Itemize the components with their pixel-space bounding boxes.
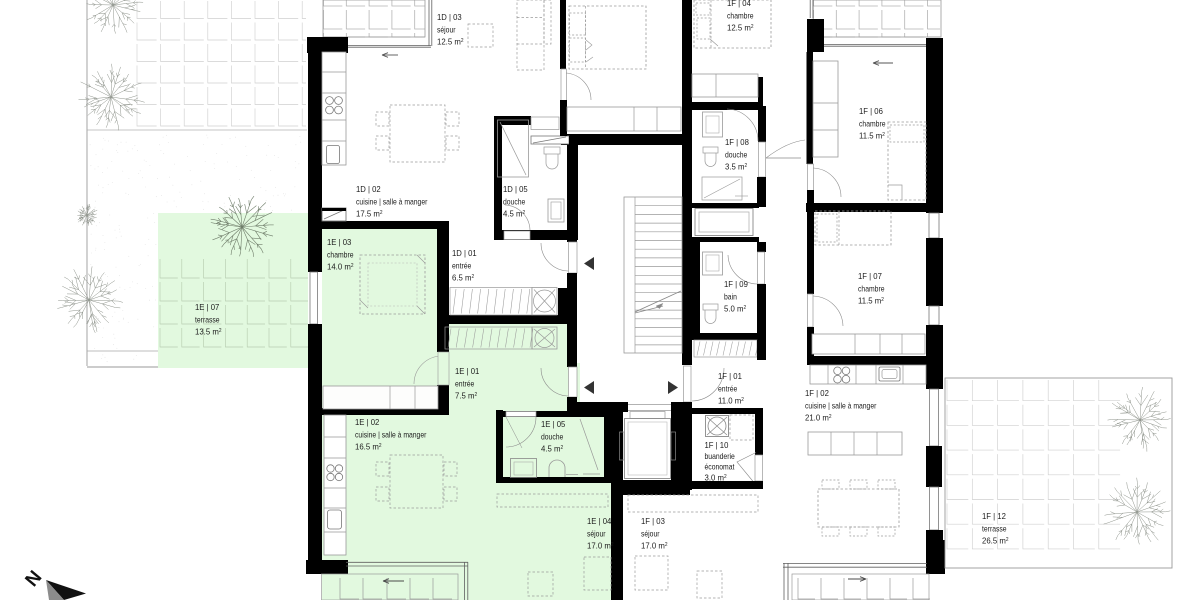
- svg-text:entrée: entrée: [455, 378, 475, 388]
- svg-text:chambre: chambre: [858, 283, 885, 293]
- svg-text:11.5 m2: 11.5 m2: [859, 131, 885, 141]
- svg-text:douche: douche: [541, 431, 564, 441]
- svg-text:1D | 02: 1D | 02: [356, 184, 381, 194]
- svg-text:cuisine | salle à manger: cuisine | salle à manger: [356, 196, 428, 206]
- svg-text:1F | 01: 1F | 01: [718, 371, 742, 381]
- svg-text:cuisine | salle à manger: cuisine | salle à manger: [355, 429, 427, 439]
- svg-text:douche: douche: [503, 196, 526, 206]
- svg-text:1E | 02: 1E | 02: [355, 417, 380, 427]
- svg-text:11.0 m2: 11.0 m2: [718, 396, 744, 406]
- svg-text:1E | 01: 1E | 01: [455, 366, 480, 376]
- svg-text:buanderie: buanderie: [705, 451, 736, 461]
- svg-text:chambre: chambre: [859, 118, 886, 128]
- svg-text:1F | 02: 1F | 02: [805, 388, 829, 398]
- svg-text:1D | 01: 1D | 01: [452, 248, 477, 258]
- svg-text:11.5 m2: 11.5 m2: [858, 296, 884, 306]
- svg-text:17.5 m2: 17.5 m2: [356, 209, 383, 219]
- svg-text:5.0 m2: 5.0 m2: [724, 304, 746, 314]
- svg-text:17.0 m2: 17.0 m2: [641, 541, 668, 551]
- svg-text:chambre: chambre: [327, 249, 354, 259]
- svg-text:douche: douche: [725, 149, 748, 159]
- svg-text:séjour: séjour: [587, 528, 606, 538]
- svg-text:terrasse: terrasse: [195, 314, 220, 324]
- svg-text:16.5 m2: 16.5 m2: [355, 442, 382, 452]
- svg-text:1F | 03: 1F | 03: [641, 516, 665, 526]
- svg-text:bain: bain: [724, 291, 737, 301]
- svg-text:1F | 08: 1F | 08: [725, 137, 749, 147]
- svg-text:1E | 03: 1E | 03: [327, 237, 352, 247]
- svg-text:chambre: chambre: [727, 10, 754, 20]
- svg-text:1F | 12: 1F | 12: [982, 511, 1006, 521]
- svg-text:1F | 06: 1F | 06: [859, 106, 883, 116]
- svg-text:3.5 m2: 3.5 m2: [725, 162, 747, 172]
- svg-text:4.5 m2: 4.5 m2: [541, 444, 563, 454]
- svg-text:26.5 m2: 26.5 m2: [982, 536, 1009, 546]
- svg-text:terrasse: terrasse: [982, 523, 1007, 533]
- svg-text:1D | 03: 1D | 03: [437, 12, 462, 22]
- svg-text:17.0 m2: 17.0 m2: [587, 541, 614, 551]
- svg-text:économat: économat: [705, 462, 735, 472]
- svg-text:1F | 10: 1F | 10: [705, 440, 729, 450]
- svg-text:6.5 m2: 6.5 m2: [452, 273, 474, 283]
- svg-text:14.0 m2: 14.0 m2: [327, 262, 354, 272]
- svg-text:cuisine | salle à manger: cuisine | salle à manger: [805, 400, 877, 410]
- svg-text:séjour: séjour: [437, 24, 456, 34]
- svg-text:3.0 m2: 3.0 m2: [705, 472, 727, 482]
- svg-text:12.5 m2: 12.5 m2: [727, 23, 754, 33]
- svg-text:entrée: entrée: [718, 383, 738, 393]
- svg-text:1E | 05: 1E | 05: [541, 419, 566, 429]
- svg-text:21.0 m2: 21.0 m2: [805, 413, 832, 423]
- svg-text:1F | 07: 1F | 07: [858, 271, 882, 281]
- svg-text:7.5 m2: 7.5 m2: [455, 391, 477, 401]
- svg-text:entrée: entrée: [452, 260, 472, 270]
- svg-text:12.5 m2: 12.5 m2: [437, 37, 464, 47]
- svg-text:4.5 m2: 4.5 m2: [503, 209, 525, 219]
- svg-text:1E | 04: 1E | 04: [587, 516, 612, 526]
- svg-text:1D | 05: 1D | 05: [503, 184, 528, 194]
- svg-text:séjour: séjour: [641, 528, 660, 538]
- svg-text:1F | 09: 1F | 09: [724, 279, 748, 289]
- svg-text:1E | 07: 1E | 07: [195, 302, 220, 312]
- svg-text:1F | 04: 1F | 04: [727, 0, 751, 8]
- svg-text:13.5 m2: 13.5 m2: [195, 327, 222, 337]
